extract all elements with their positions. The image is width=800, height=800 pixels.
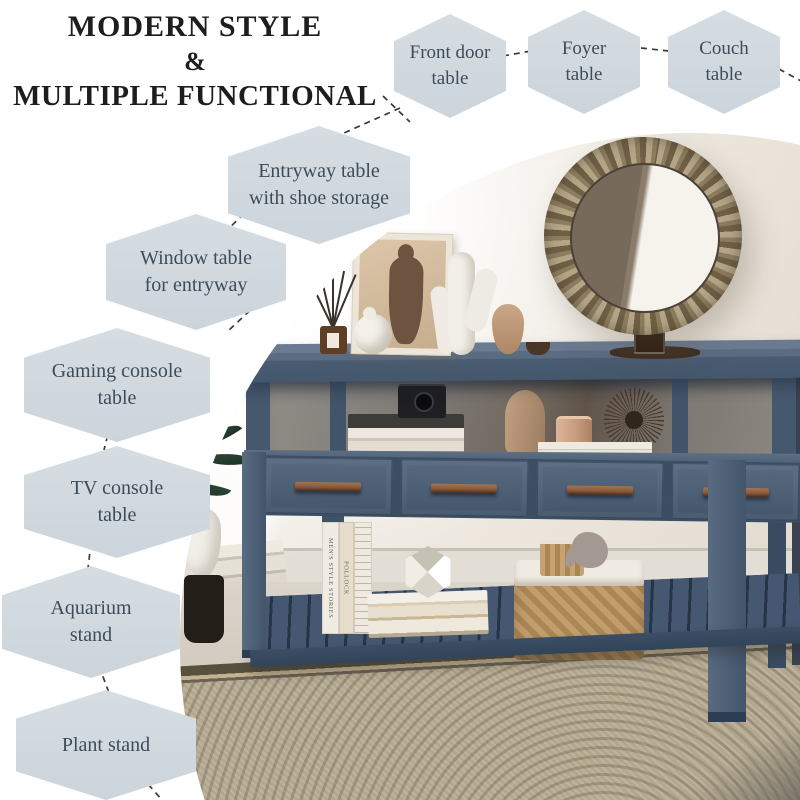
hexagon-label: table (706, 62, 743, 88)
hexagon-label: Window table (140, 245, 252, 272)
title-ampersand: & (0, 47, 390, 77)
hexagon-label: stand (70, 622, 112, 649)
hexagon-label: Entryway table (258, 158, 380, 185)
hexagon-label: table (432, 66, 469, 92)
hexagon-label: TV console (71, 475, 163, 502)
hexagon-label: Couch (699, 36, 749, 62)
title-line-1: MODERN STYLE (0, 10, 390, 44)
hexagon-label: Foyer (562, 36, 606, 62)
hexagon-label: table (98, 502, 137, 529)
hexagon-label: with shoe storage (249, 185, 389, 212)
hexagon-label: for entryway (145, 272, 248, 299)
hexagon-label: Front door (410, 40, 491, 66)
title-line-2: MULTIPLE FUNCTIONAL (0, 80, 390, 113)
hexagon-label: table (566, 62, 603, 88)
hexagon-label: Plant stand (62, 732, 150, 759)
product-infographic: MODERN STYLE & MULTIPLE FUNCTIONAL Front… (0, 0, 800, 800)
hexagon-label: table (98, 385, 137, 412)
hexagon-label: Aquarium (50, 595, 131, 622)
page-title: MODERN STYLE & MULTIPLE FUNCTIONAL (0, 10, 390, 113)
hexagon-label: Gaming console (52, 358, 183, 385)
